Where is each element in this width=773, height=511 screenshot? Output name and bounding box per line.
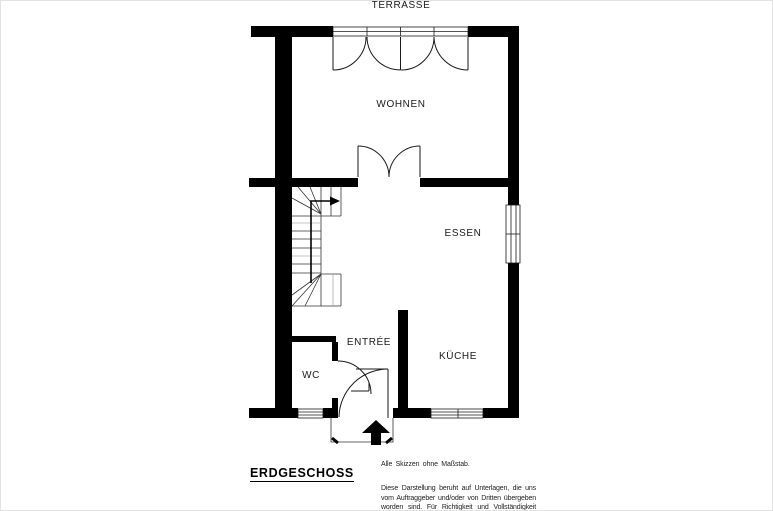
wall-bottom-seg3 [393, 408, 431, 418]
floor-plan-drawing [1, 1, 773, 511]
window-kueche [431, 409, 483, 418]
room-label-wc: WC [302, 370, 320, 381]
room-label-entree: ENTRÉE [347, 337, 391, 348]
room-label-wohnen: WOHNEN [376, 99, 425, 110]
staircase [292, 187, 341, 306]
room-label-kueche: KÜCHE [439, 351, 477, 362]
wall-right-lower [508, 263, 519, 418]
wall-wc-top [292, 336, 336, 342]
wall-wc-right-upper [332, 342, 338, 361]
wall-kueche-divider [398, 310, 408, 408]
windows [298, 27, 520, 418]
stairs-direction-arrow-icon [311, 197, 340, 284]
wohnen-essen-double-door [358, 146, 420, 177]
room-label-essen: ESSEN [445, 228, 482, 239]
wc-door [338, 361, 371, 394]
window-essen [506, 205, 520, 263]
room-label-terrasse: TERRASSE [372, 0, 431, 11]
entrance-door [339, 369, 388, 418]
wall-left [275, 26, 292, 418]
wall-bottom-seg4 [483, 408, 519, 418]
disclaimer-text: Diese Darstellung beruht auf Unterlagen,… [381, 484, 536, 511]
wall-bottom-seg2 [323, 408, 338, 418]
wall-middle-right [420, 178, 519, 187]
window-wc [298, 409, 323, 418]
terrace-door-frame [333, 27, 468, 36]
scale-note: Alle Skizzen ohne Maßstab. [381, 461, 541, 468]
terrace-french-doors [333, 37, 468, 70]
floor-plan-page: TERRASSE WOHNEN ESSEN ENTRÉE WC KÜCHE ER… [0, 0, 773, 511]
entrance-porch [331, 418, 393, 445]
wall-middle-left [249, 178, 358, 187]
floor-title: ERDGESCHOSS [250, 466, 354, 482]
walls [249, 26, 519, 418]
wall-bottom-seg1 [249, 408, 298, 418]
wall-wc-right-lower [332, 398, 338, 408]
